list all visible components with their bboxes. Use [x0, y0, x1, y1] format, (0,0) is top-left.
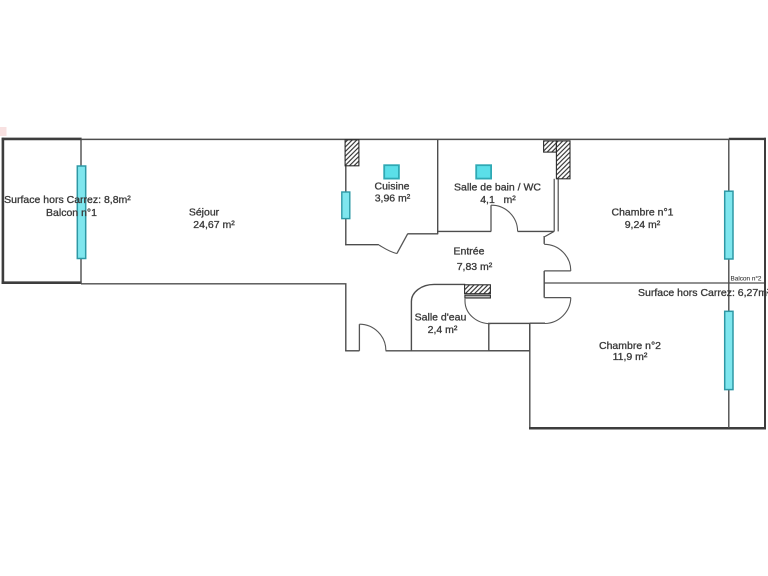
svg-text:Séjour: Séjour — [189, 207, 220, 219]
svg-text:Surface hors Carrez: 8,8m²: Surface hors Carrez: 8,8m² — [4, 194, 131, 206]
svg-text:Balcon n°1: Balcon n°1 — [46, 207, 97, 219]
svg-text:9,24 m²: 9,24 m² — [625, 219, 661, 231]
svg-text:Balcon n°2: Balcon n°2 — [731, 274, 762, 282]
svg-text:7,83 m²: 7,83 m² — [457, 261, 493, 273]
svg-text:Cuisine: Cuisine — [374, 181, 409, 193]
svg-text:Entrée: Entrée — [454, 246, 485, 258]
svg-text:4,1 m²: 4,1 m² — [480, 194, 516, 206]
svg-text:3,96 m²: 3,96 m² — [375, 193, 411, 205]
svg-text:Surface hors Carrez: 6,27m²: Surface hors Carrez: 6,27m² — [638, 287, 768, 299]
svg-text:Salle d'eau: Salle d'eau — [415, 312, 467, 324]
svg-text:24,67 m²: 24,67 m² — [193, 219, 235, 231]
svg-text:Chambre n°1: Chambre n°1 — [612, 207, 674, 219]
svg-text:2,4 m²: 2,4 m² — [428, 324, 458, 336]
svg-text:Salle de bain / WC: Salle de bain / WC — [454, 182, 541, 194]
svg-text:11,9 m²: 11,9 m² — [613, 351, 648, 363]
